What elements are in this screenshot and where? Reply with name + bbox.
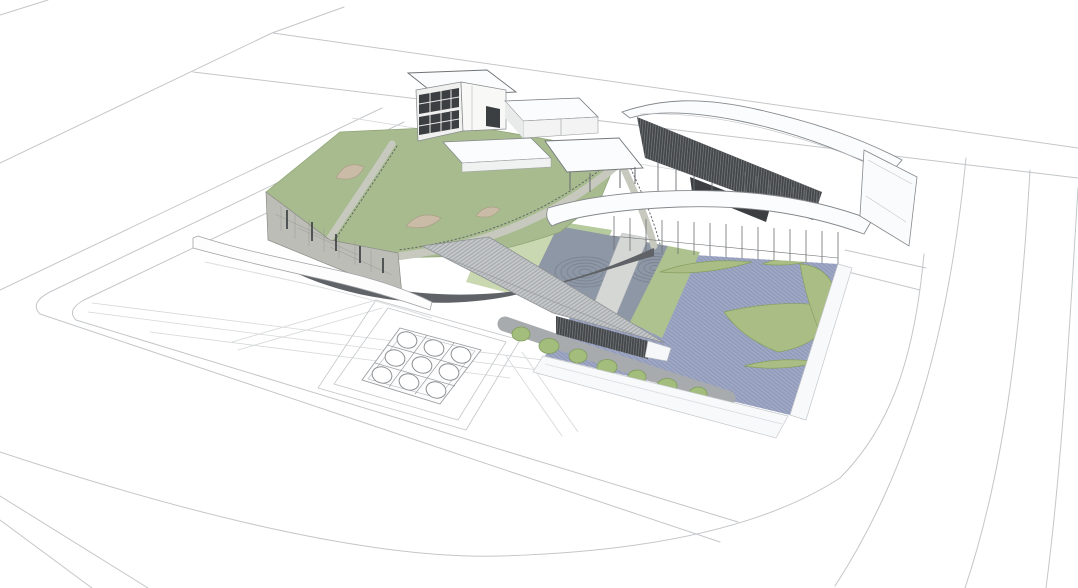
cube-right-face-glazing — [486, 106, 500, 128]
skylight-plaza — [318, 300, 520, 430]
architectural-rendering-canvas — [0, 0, 1078, 588]
site-plan-svg — [0, 0, 1078, 588]
flat-pavilion-front-face — [523, 117, 598, 138]
tree-circle — [539, 339, 559, 354]
tree-circle — [512, 327, 530, 341]
tree-circle — [569, 349, 587, 363]
